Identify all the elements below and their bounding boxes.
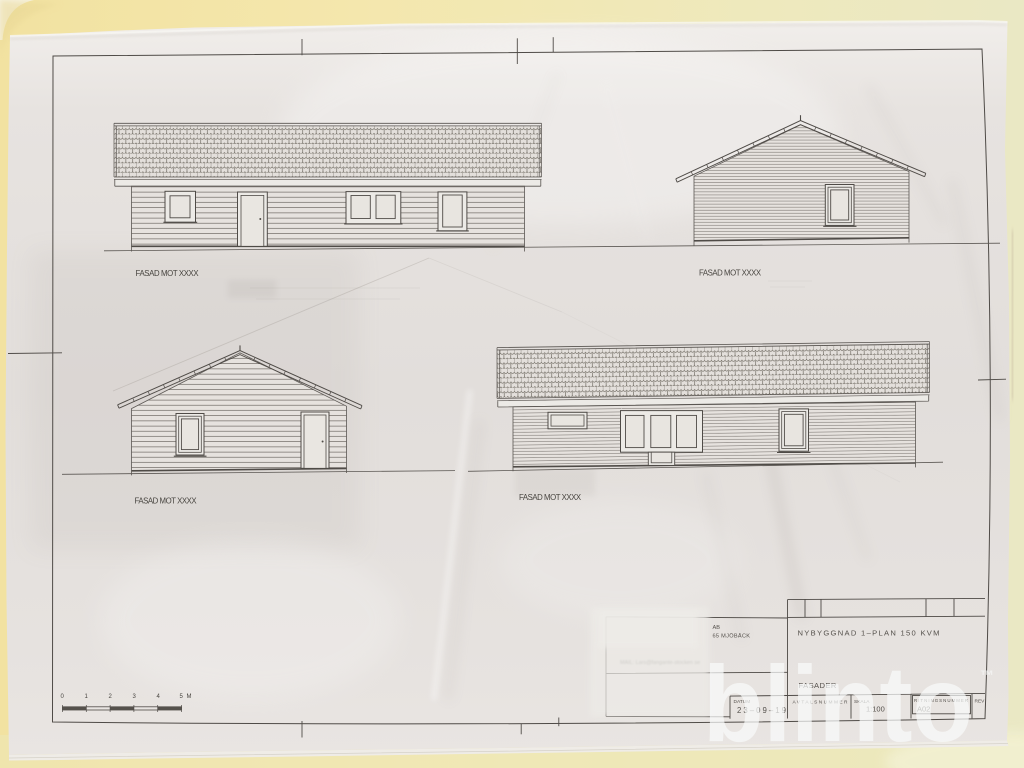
svg-text:REV: REV	[975, 698, 986, 704]
svg-text:FASAD MOT XXXX: FASAD MOT XXXX	[135, 497, 198, 506]
svg-text:FASAD MOT XXXX: FASAD MOT XXXX	[136, 269, 200, 278]
svg-text:AB: AB	[713, 625, 721, 631]
svg-text:FASAD MOT XXXX: FASAD MOT XXXX	[519, 493, 582, 502]
svg-text:65 MJÖBÄCK: 65 MJÖBÄCK	[713, 632, 751, 639]
svg-text:™: ™	[980, 667, 994, 683]
svg-text:FASAD MOT XXXX: FASAD MOT XXXX	[699, 269, 762, 278]
svg-text:M: M	[187, 694, 192, 700]
svg-text:NYBYGGNAD 1–PLAN 150 KVM: NYBYGGNAD 1–PLAN 150 KVM	[798, 629, 940, 638]
svg-text:blinto: blinto	[703, 643, 973, 764]
